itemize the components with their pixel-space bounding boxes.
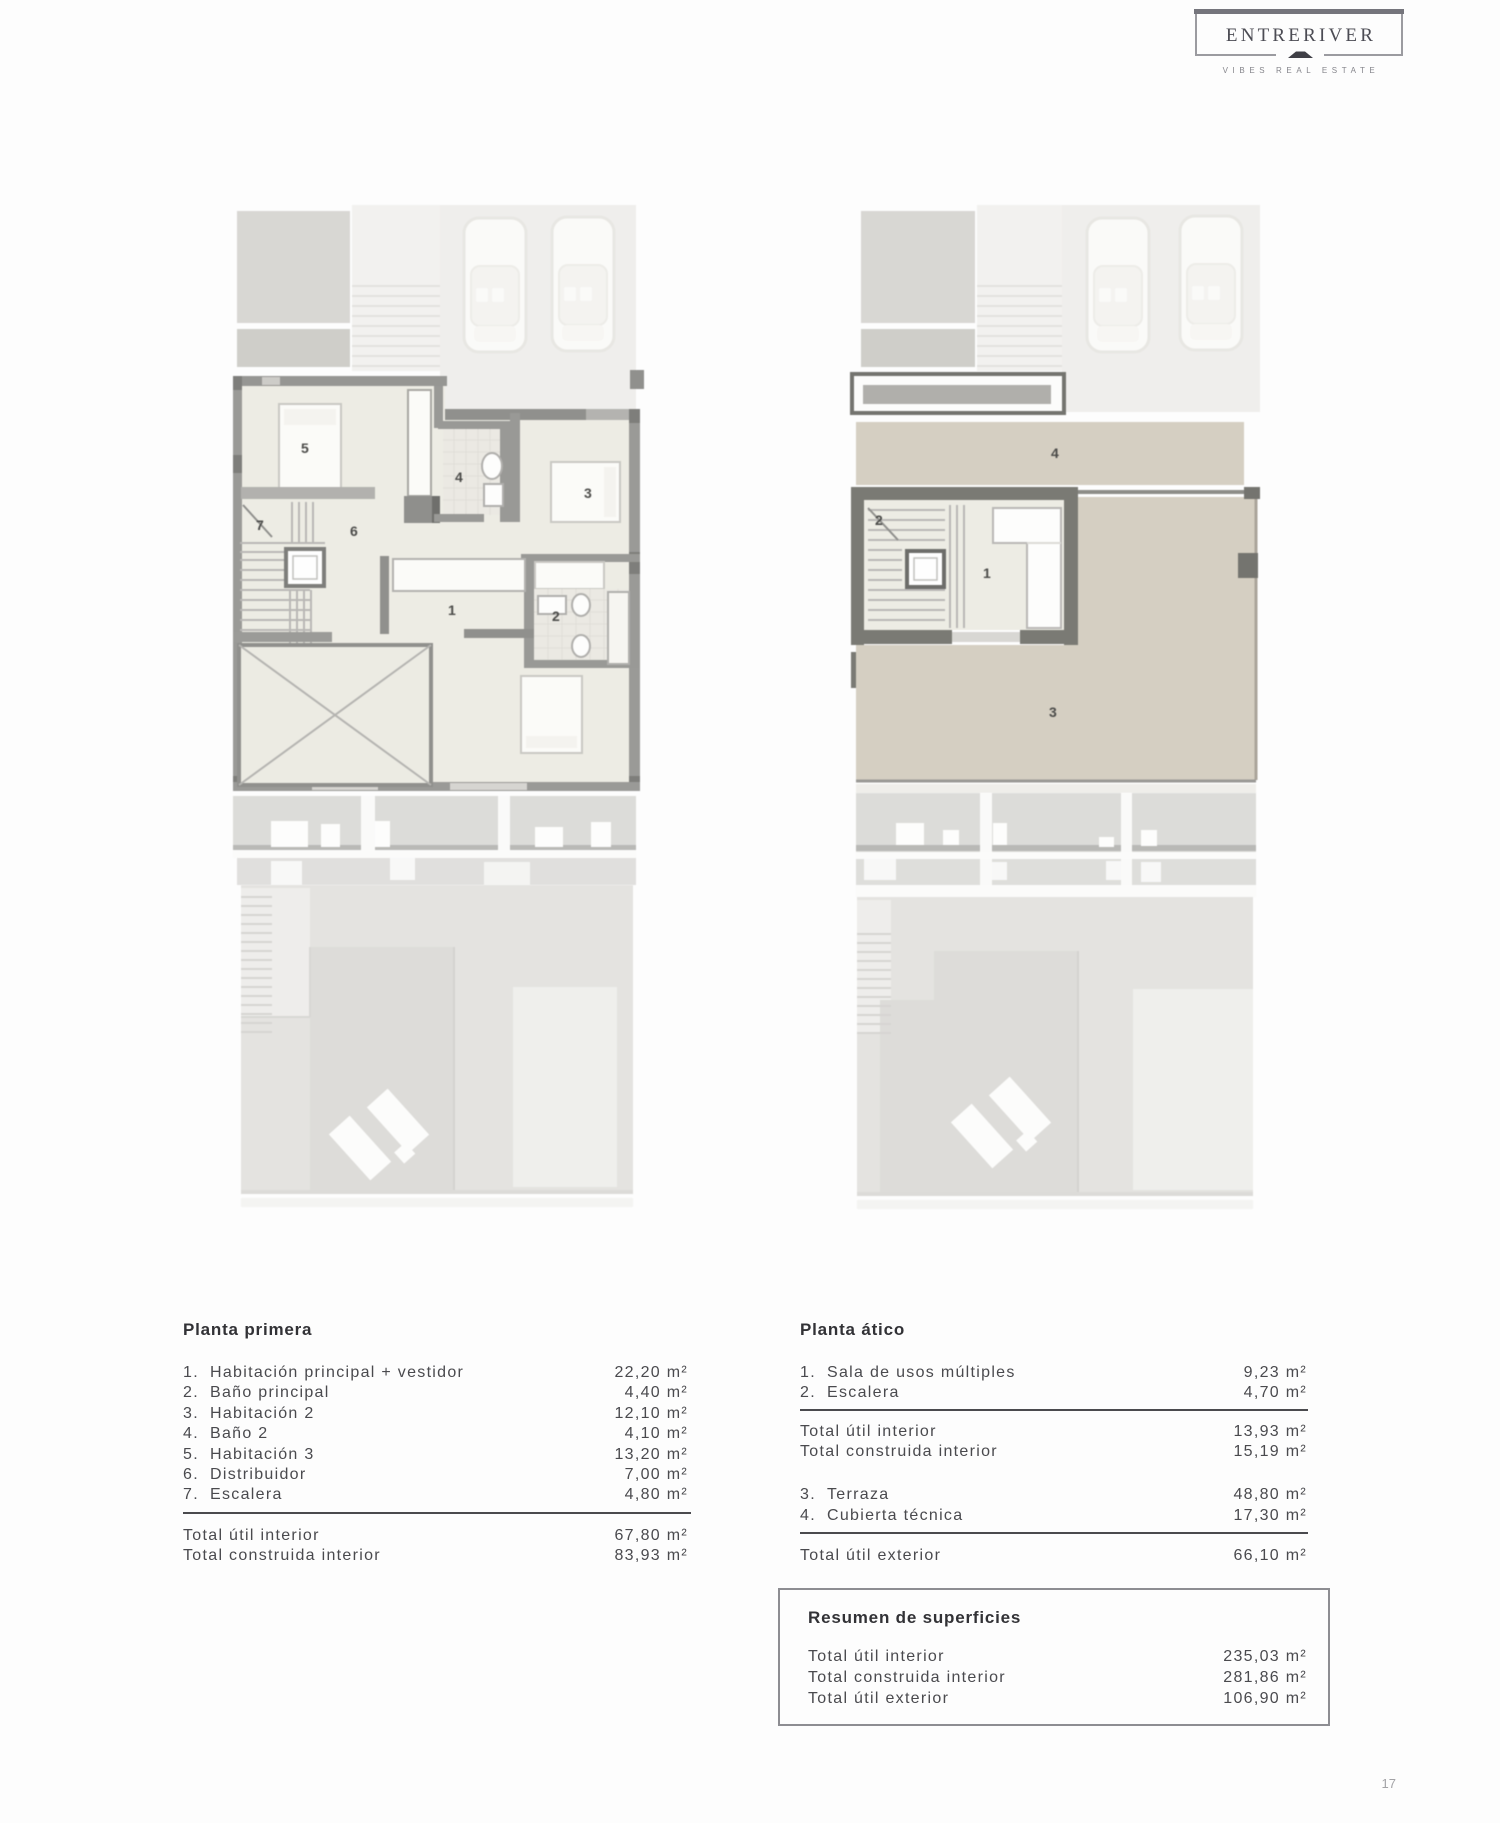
svg-text:Resumen de superficies: Resumen de superficies <box>808 1608 1021 1627</box>
svg-text:Sala de usos múltiples: Sala de usos múltiples <box>827 1364 1016 1381</box>
svg-text:4.: 4. <box>800 1507 816 1524</box>
svg-text:1.: 1. <box>800 1364 816 1381</box>
svg-text:4,80 m²: 4,80 m² <box>625 1486 688 1503</box>
svg-text:Planta primera: Planta primera <box>183 1320 312 1339</box>
svg-text:7.: 7. <box>183 1486 199 1503</box>
svg-text:3.: 3. <box>800 1486 816 1503</box>
svg-text:Cubierta técnica: Cubierta técnica <box>827 1507 963 1524</box>
svg-text:2.: 2. <box>800 1384 816 1401</box>
svg-text:Total útil interior: Total útil interior <box>800 1423 937 1440</box>
svg-text:13,93 m²: 13,93 m² <box>1233 1423 1307 1440</box>
svg-text:Habitación 2: Habitación 2 <box>210 1405 315 1422</box>
svg-text:3: 3 <box>584 485 592 501</box>
svg-text:22,20 m²: 22,20 m² <box>614 1364 688 1381</box>
svg-text:4,10 m²: 4,10 m² <box>625 1425 688 1442</box>
svg-text:ENTRERIVER: ENTRERIVER <box>1226 25 1376 46</box>
svg-text:Total útil exterior: Total útil exterior <box>808 1690 949 1707</box>
svg-text:Total construida interior: Total construida interior <box>800 1443 998 1460</box>
svg-text:83,93 m²: 83,93 m² <box>614 1547 688 1564</box>
svg-text:7: 7 <box>256 517 264 533</box>
svg-text:12,10 m²: 12,10 m² <box>614 1405 688 1422</box>
svg-text:281,86 m²: 281,86 m² <box>1223 1669 1307 1686</box>
svg-text:4,40 m²: 4,40 m² <box>625 1384 688 1401</box>
svg-text:Planta ático: Planta ático <box>800 1320 905 1339</box>
svg-text:48,80 m²: 48,80 m² <box>1233 1486 1307 1503</box>
svg-text:Baño principal: Baño principal <box>210 1384 330 1401</box>
svg-text:15,19 m²: 15,19 m² <box>1233 1443 1307 1460</box>
svg-text:Total útil interior: Total útil interior <box>183 1527 320 1544</box>
svg-text:Distribuidor: Distribuidor <box>210 1466 307 1483</box>
svg-text:17: 17 <box>1382 1776 1396 1791</box>
svg-text:3.: 3. <box>183 1405 199 1422</box>
svg-text:Escalera: Escalera <box>827 1384 900 1401</box>
svg-text:2: 2 <box>552 608 560 624</box>
svg-text:4: 4 <box>455 469 463 485</box>
svg-text:Total construida interior: Total construida interior <box>183 1547 381 1564</box>
svg-text:1: 1 <box>983 565 991 581</box>
svg-text:5.: 5. <box>183 1446 199 1463</box>
svg-text:13,20 m²: 13,20 m² <box>614 1446 688 1463</box>
svg-text:9,23 m²: 9,23 m² <box>1244 1364 1307 1381</box>
svg-text:4,70 m²: 4,70 m² <box>1244 1384 1307 1401</box>
svg-text:Escalera: Escalera <box>210 1486 283 1503</box>
svg-text:2: 2 <box>875 512 883 528</box>
svg-text:6.: 6. <box>183 1466 199 1483</box>
svg-text:66,10 m²: 66,10 m² <box>1233 1547 1307 1564</box>
svg-text:6: 6 <box>350 523 358 539</box>
svg-text:Habitación principal + vestido: Habitación principal + vestidor <box>210 1364 464 1381</box>
svg-text:Baño 2: Baño 2 <box>210 1425 269 1442</box>
svg-text:5: 5 <box>301 440 309 456</box>
svg-text:3: 3 <box>1049 704 1057 720</box>
svg-text:17,30 m²: 17,30 m² <box>1233 1507 1307 1524</box>
svg-text:1: 1 <box>448 602 456 618</box>
svg-text:Total útil interior: Total útil interior <box>808 1648 945 1665</box>
svg-text:Habitación 3: Habitación 3 <box>210 1446 315 1463</box>
svg-text:235,03 m²: 235,03 m² <box>1223 1648 1307 1665</box>
svg-text:7,00 m²: 7,00 m² <box>625 1466 688 1483</box>
svg-text:2.: 2. <box>183 1384 199 1401</box>
svg-text:1.: 1. <box>183 1364 199 1381</box>
svg-text:67,80 m²: 67,80 m² <box>614 1527 688 1544</box>
svg-text:106,90 m²: 106,90 m² <box>1223 1690 1307 1707</box>
svg-text:Total útil exterior: Total útil exterior <box>800 1547 941 1564</box>
svg-text:4.: 4. <box>183 1425 199 1442</box>
svg-text:4: 4 <box>1051 445 1059 461</box>
svg-text:VIBES REAL ESTATE: VIBES REAL ESTATE <box>1223 66 1380 75</box>
svg-text:Terraza: Terraza <box>827 1486 889 1503</box>
svg-text:Total construida interior: Total construida interior <box>808 1669 1006 1686</box>
